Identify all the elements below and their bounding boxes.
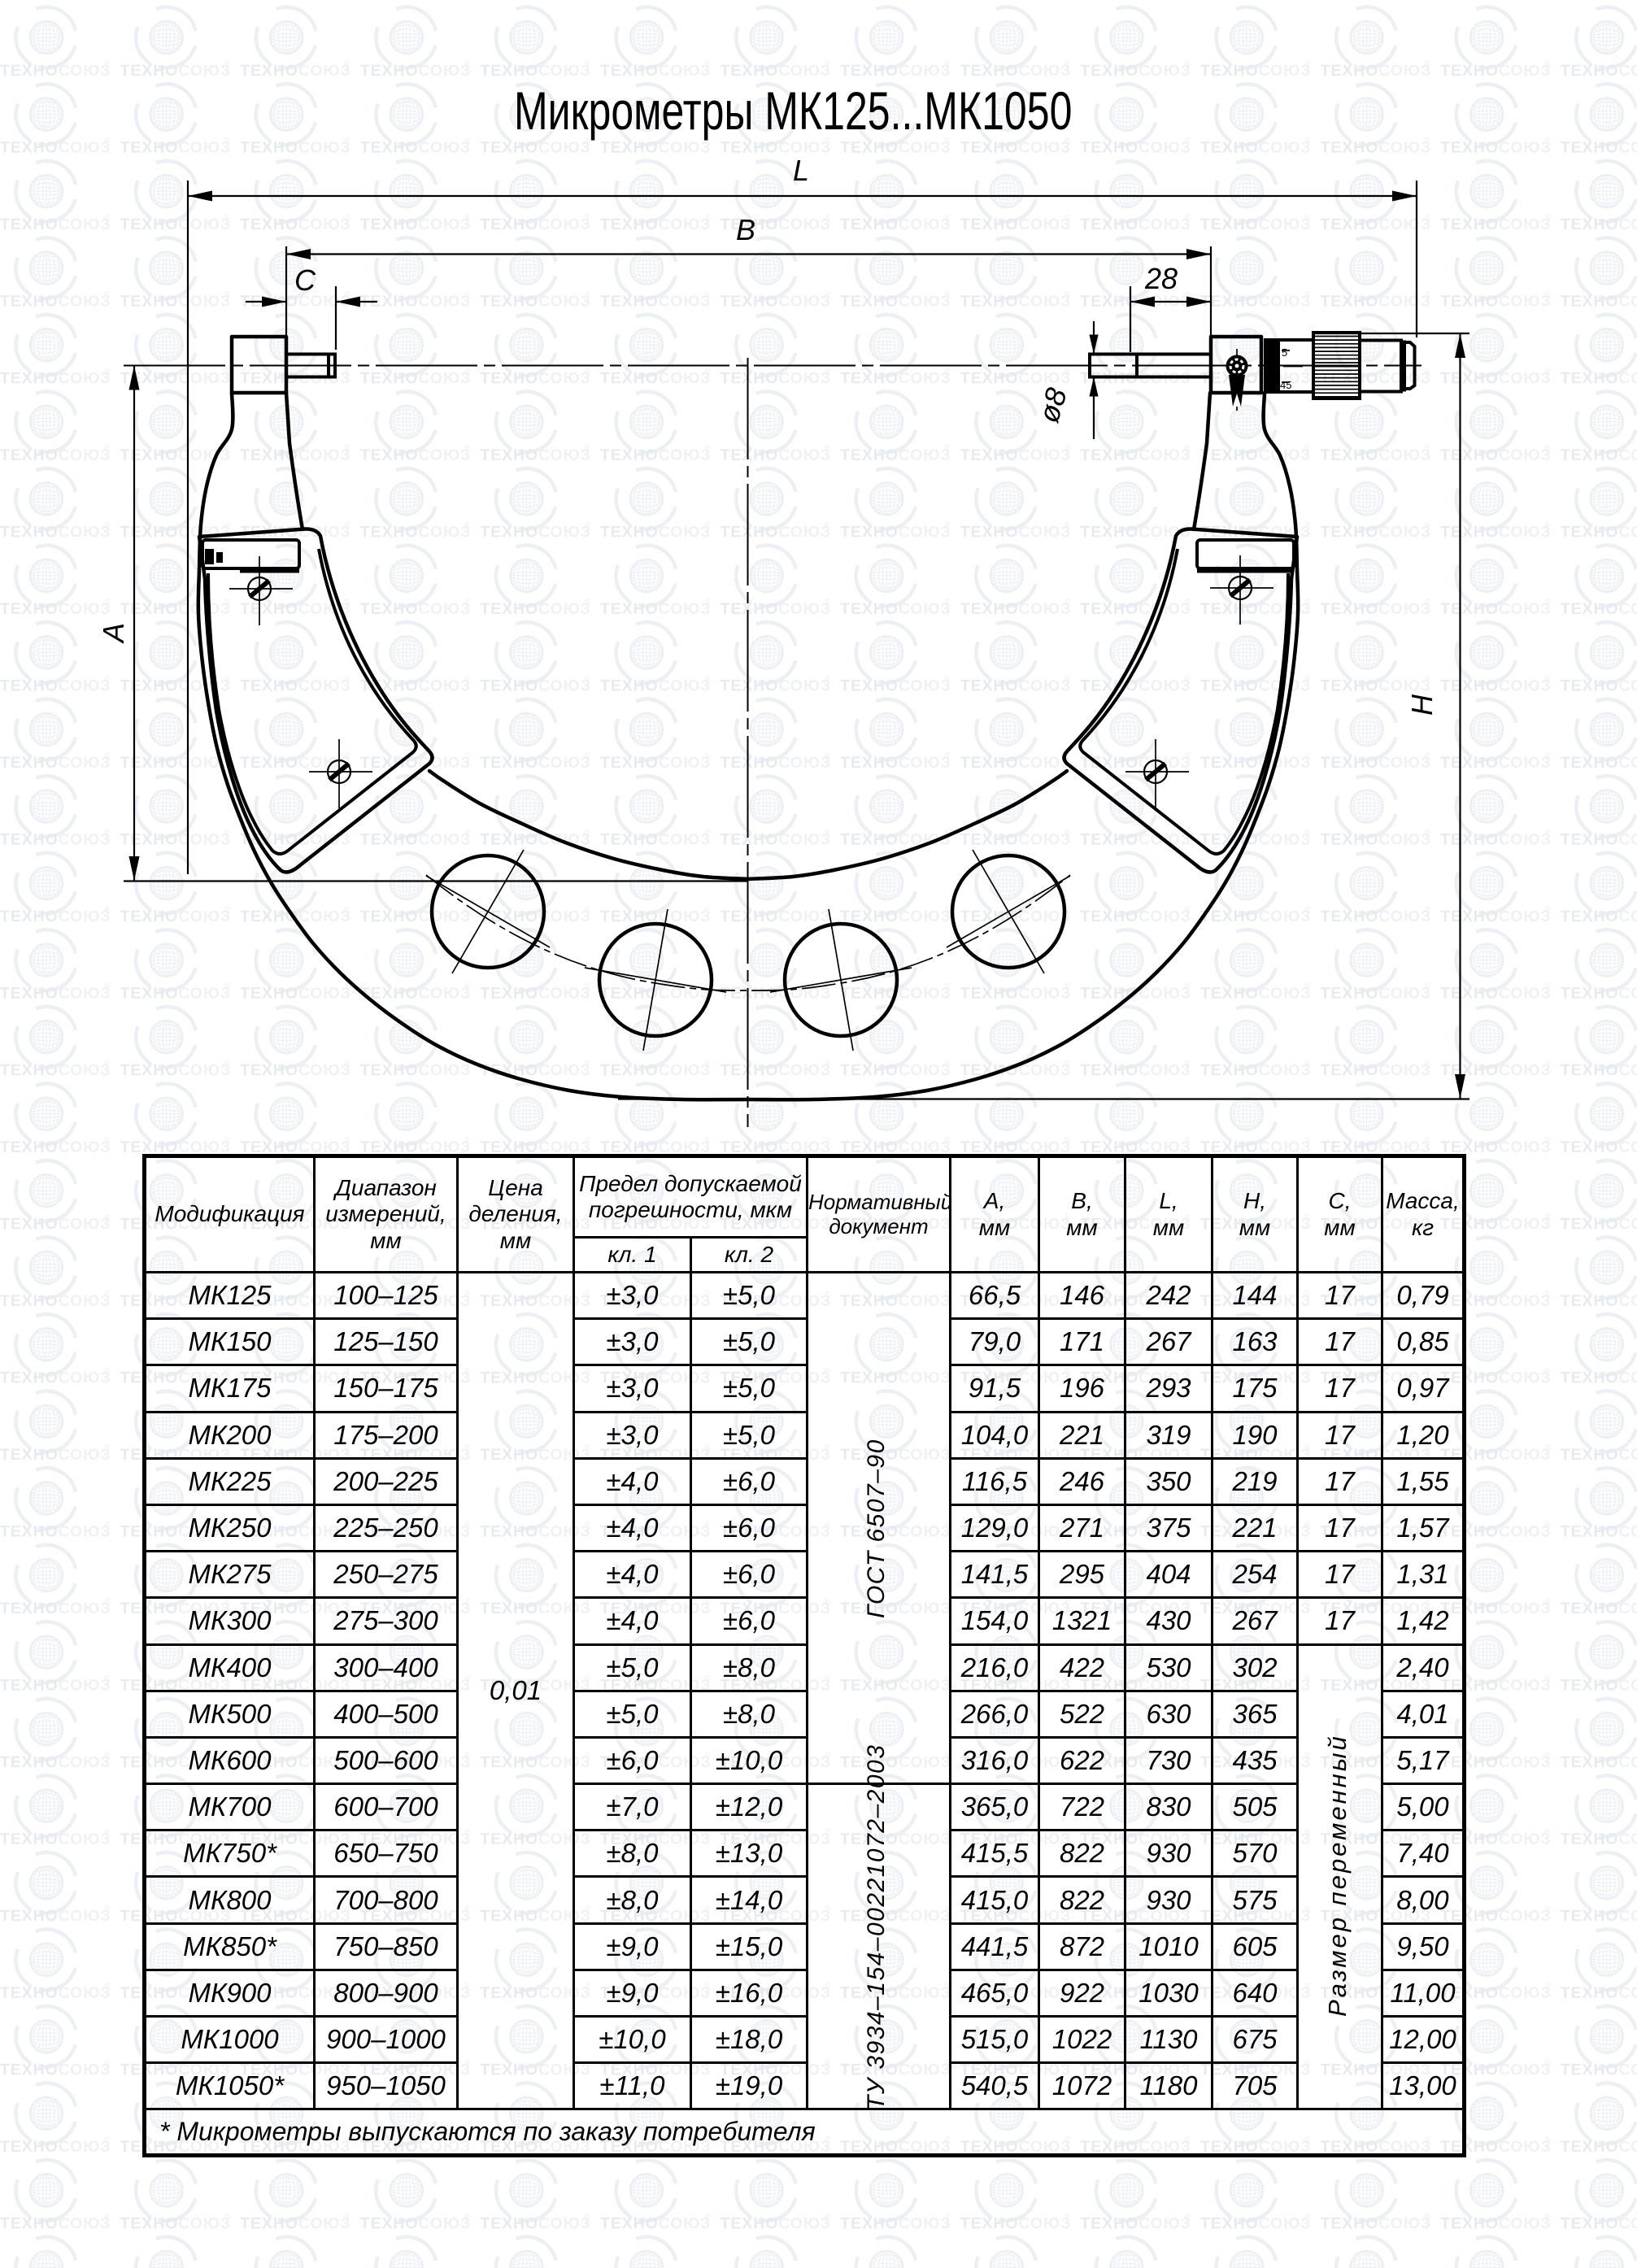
svg-text:28: 28 [1144,262,1178,295]
svg-text:ø8: ø8 [1031,384,1073,426]
svg-text:B: B [736,213,755,246]
svg-text:C: C [294,263,316,297]
svg-text:H: H [1405,694,1439,716]
svg-text:L: L [793,154,809,187]
svg-text:5: 5 [1282,346,1287,359]
svg-text:45: 45 [1280,379,1291,391]
svg-text:A: A [97,623,130,644]
